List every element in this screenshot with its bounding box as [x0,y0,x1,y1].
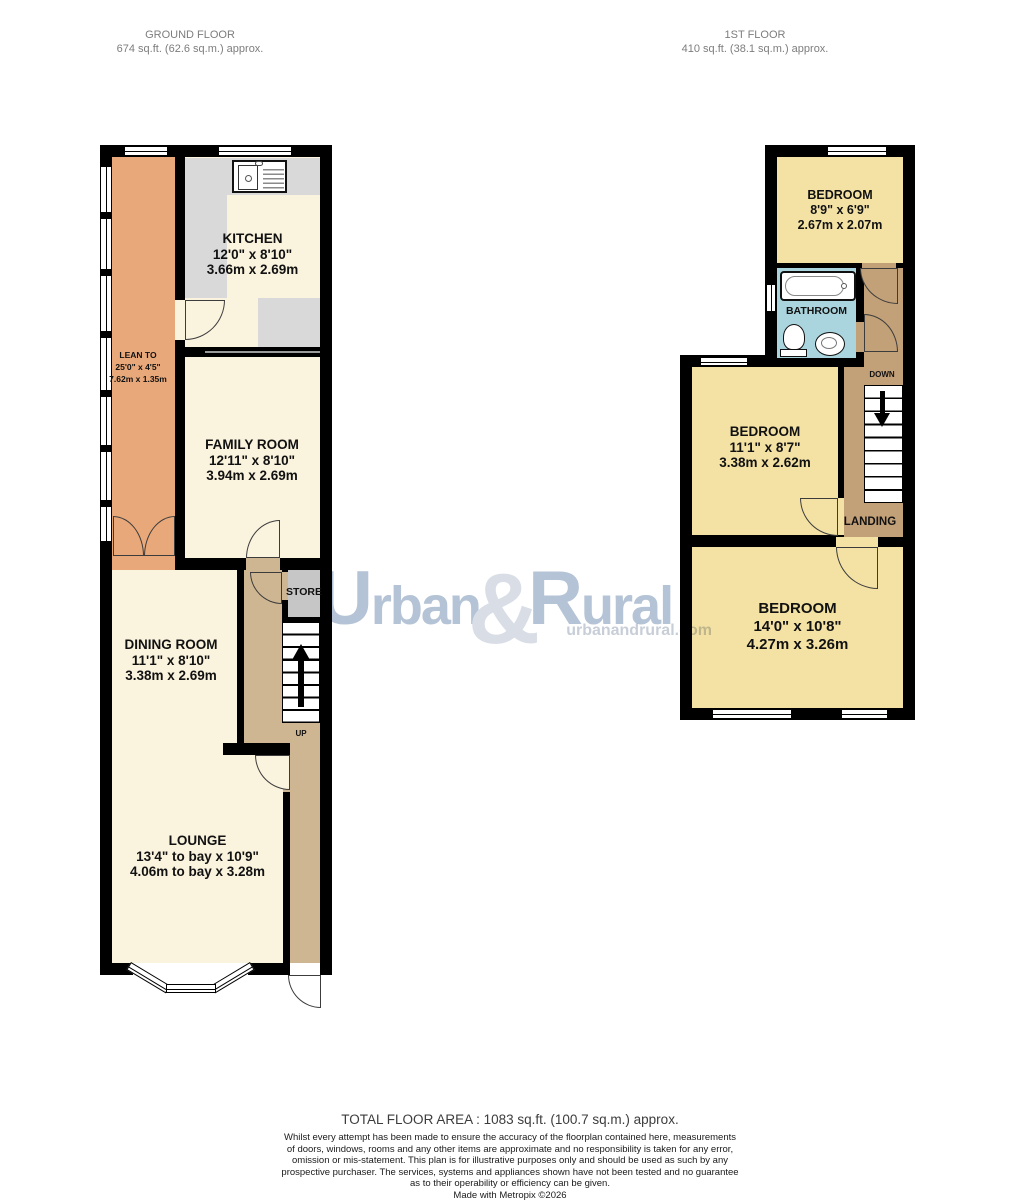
bedroom-mid-metric: 3.38m x 2.62m [692,455,838,471]
label-lounge: LOUNGE 13'4" to bay x 10'9" 4.06m to bay… [110,833,285,880]
window-mullion [100,212,112,219]
front-door-opening [290,963,320,975]
bedroom-large-metric: 4.27m x 3.26m [692,636,903,654]
label-bathroom: BATHROOM [777,305,856,317]
toilet [783,324,805,350]
disclaimer-line: as to their operability or efficiency ca… [0,1178,1020,1190]
label-store: STORE [284,586,324,598]
window-mullion [100,445,112,452]
label-family-room: FAMILY ROOM 12'11" x 8'10" 3.94m x 2.69m [172,437,332,484]
footer: TOTAL FLOOR AREA : 1083 sq.ft. (100.7 sq… [0,1112,1020,1202]
disclaimer-line: Whilst every attempt has been made to en… [0,1132,1020,1144]
family-room-imperial: 12'11" x 8'10" [172,453,332,469]
disclaimer-line: omission or mis-statement. This plan is … [0,1155,1020,1167]
bedroom-large-name: BEDROOM [692,600,903,618]
bathtub [780,271,856,301]
lean-to-metric: 7.62m x 1.35m [100,373,176,385]
label-dining-room: DINING ROOM 11'1" x 8'10" 3.38m x 2.69m [106,637,236,684]
kitchen-counter-block [258,298,320,347]
lounge-metric: 4.06m to bay x 3.28m [110,864,285,880]
stairs-down-label: DOWN [858,370,906,379]
doorway-bathroom [856,322,864,352]
doorway-bedroom-large [836,537,878,547]
window-bathroom [766,284,776,312]
label-lean-to: LEAN TO 25'0" x 4'5" 7.62m x 1.35m [100,349,176,385]
lean-to-name: LEAN TO [100,349,176,361]
lean-to-imperial: 25'0" x 4'5" [100,361,176,373]
bedroom-small-metric: 2.67m x 2.07m [777,218,903,233]
hallway-lower [290,755,320,963]
window-mullion [100,500,112,507]
kitchen-imperial: 12'0" x 8'10" [185,247,320,263]
doorway-kitchen-leanto [175,300,185,340]
window-mullion [100,390,112,397]
door-arc-front-entrance [288,975,321,1008]
label-landing: LANDING [830,516,910,528]
ground-floor-header: GROUND FLOOR 674 sq.ft. (62.6 sq.m.) app… [85,28,295,56]
hallway-join [290,743,320,755]
kitchen-divider-line [205,351,320,353]
down-arrow-icon [880,391,885,415]
window-mullion [100,269,112,276]
up-arrow-head-icon [292,644,310,660]
kitchen-sink [232,160,287,193]
label-bedroom-mid: BEDROOM 11'1" x 8'7" 3.38m x 2.62m [692,424,838,471]
bedroom-large-imperial: 14'0" x 10'8" [692,618,903,636]
bedroom-small-name: BEDROOM [777,188,903,203]
lounge-imperial: 13'4" to bay x 10'9" [110,849,285,865]
disclaimer-line: of doors, windows, rooms and any other i… [0,1144,1020,1156]
first-floor-area: 410 sq.ft. (38.1 sq.m.) approx. [650,42,860,56]
down-arrow-head-icon [874,413,890,427]
doorway-leanto-dining [112,556,175,570]
up-arrow-icon [298,659,304,707]
bedroom-small-imperial: 8'9" x 6'9" [777,203,903,218]
sink-drain [245,175,252,182]
lounge-name: LOUNGE [110,833,285,849]
watermark-url: urbanandrural.com [512,622,712,640]
first-floor-header: 1ST FLOOR 410 sq.ft. (38.1 sq.m.) approx… [650,28,860,56]
watermark-urban: Urban [318,563,480,635]
bathtub-inner [785,276,844,296]
label-kitchen: KITCHEN 12'0" x 8'10" 3.66m x 2.69m [185,231,320,278]
bathtub-tap-icon [841,283,847,289]
sink-basin [238,165,258,190]
wash-basin-bowl [821,337,837,349]
window-mullion [100,331,112,338]
total-floor-area: TOTAL FLOOR AREA : 1083 sq.ft. (100.7 sq… [0,1112,1020,1127]
label-bedroom-small: BEDROOM 8'9" x 6'9" 2.67m x 2.07m [777,188,903,233]
kitchen-metric: 3.66m x 2.69m [185,262,320,278]
window-bedroom-large-left [712,709,792,719]
opening-dining-lounge [112,743,223,755]
kitchen-name: KITCHEN [185,231,320,247]
family-room-name: FAMILY ROOM [172,437,332,453]
dining-room-name: DINING ROOM [106,637,236,653]
stairs-up-label: UP [282,729,320,738]
window-bedroom-mid [700,357,748,366]
dining-room-metric: 3.38m x 2.69m [106,668,236,684]
bay-window-centre [166,984,216,993]
disclaimer-line: prospective purchaser. The services, sys… [0,1167,1020,1179]
dining-room-imperial: 11'1" x 8'10" [106,653,236,669]
kitchen-divider-stub [185,347,205,357]
family-room-metric: 3.94m x 2.69m [172,468,332,484]
sink-drainer [263,166,284,189]
first-floor-title: 1ST FLOOR [650,28,860,42]
bedroom-mid-name: BEDROOM [692,424,838,440]
ground-floor-area: 674 sq.ft. (62.6 sq.m.) approx. [85,42,295,56]
label-bedroom-large: BEDROOM 14'0" x 10'8" 4.27m x 3.26m [692,600,903,654]
window-kitchen [218,146,292,156]
ground-floor-title: GROUND FLOOR [85,28,295,42]
wash-basin [815,332,845,356]
window-bedroom-small [827,146,887,156]
doorway-family-hall [246,558,280,570]
window-bedroom-large-right [841,709,888,719]
sink-faucet [255,161,263,166]
metropix-credit: Made with Metropix ©2026 [0,1190,1020,1202]
bedroom-mid-imperial: 11'1" x 8'7" [692,440,838,456]
window-leanto-top [124,146,168,156]
toilet-cistern [780,349,807,357]
store-wall-stub [282,600,288,622]
